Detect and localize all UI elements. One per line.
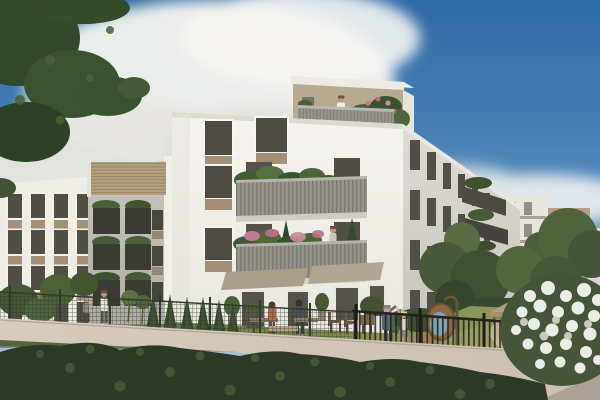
roof-slat-screen (87, 157, 172, 197)
architectural-rendering (0, 0, 600, 400)
balcony-railing (236, 176, 367, 218)
scene-canvas (0, 0, 600, 400)
dark-balconies (92, 200, 163, 306)
